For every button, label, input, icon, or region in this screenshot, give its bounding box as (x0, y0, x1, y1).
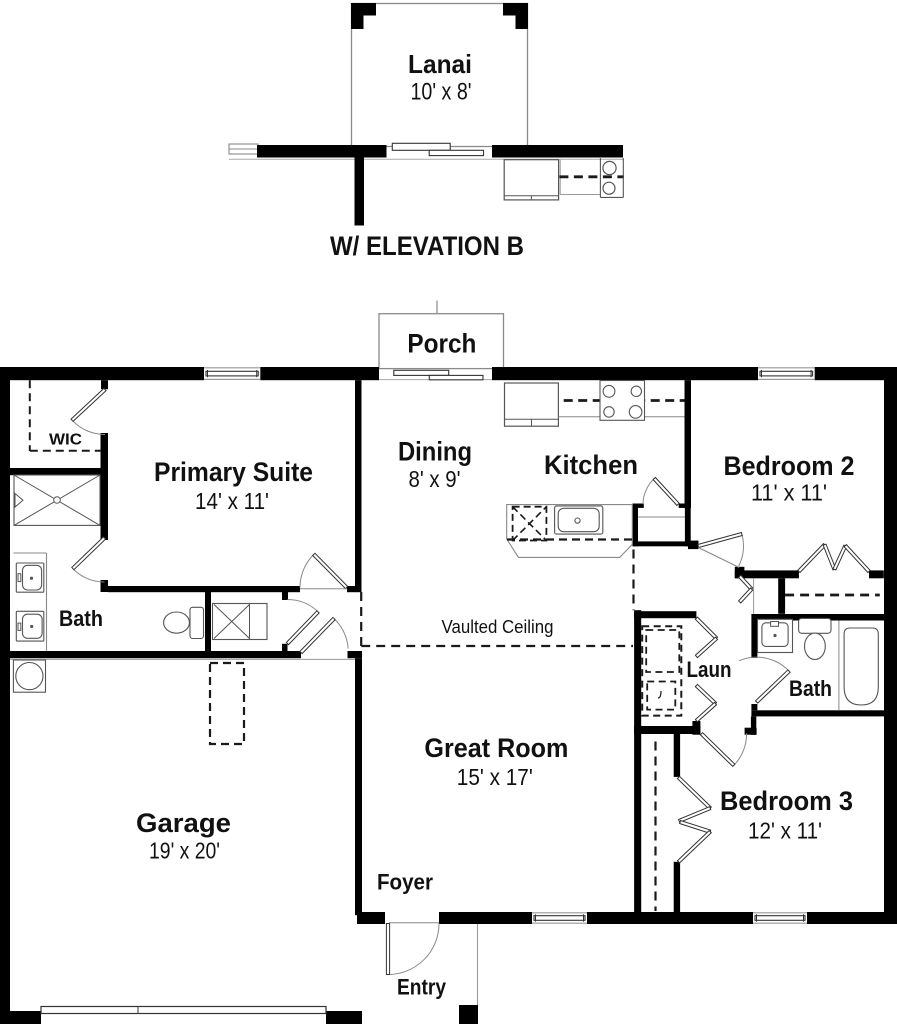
svg-text:WIC: WIC (49, 432, 82, 449)
svg-text:8' x 9': 8' x 9' (409, 466, 461, 492)
svg-text:Bath: Bath (789, 676, 832, 701)
svg-text:Foyer: Foyer (377, 870, 433, 895)
svg-text:15' x 17': 15' x 17' (457, 764, 533, 790)
svg-text:Dining: Dining (398, 437, 472, 467)
svg-text:14' x 11': 14' x 11' (195, 488, 269, 514)
svg-text:Primary Suite: Primary Suite (154, 457, 313, 487)
svg-text:10' x 8': 10' x 8' (411, 79, 472, 106)
svg-text:Bedroom 2: Bedroom 2 (724, 451, 855, 481)
svg-text:W/ ELEVATION B: W/ ELEVATION B (330, 231, 524, 261)
svg-text:19' x 20': 19' x 20' (149, 838, 220, 864)
svg-text:Great Room: Great Room (424, 733, 568, 763)
svg-text:Kitchen: Kitchen (544, 450, 638, 480)
svg-text:Bedroom 3: Bedroom 3 (720, 786, 853, 816)
svg-text:Laun: Laun (687, 657, 732, 682)
svg-text:Bath: Bath (59, 606, 103, 631)
svg-text:11' x 11': 11' x 11' (751, 480, 827, 506)
svg-text:12' x 11': 12' x 11' (748, 818, 822, 844)
svg-text:Garage: Garage (136, 808, 231, 838)
svg-text:Vaulted Ceiling: Vaulted Ceiling (442, 617, 554, 637)
svg-text:Entry: Entry (397, 975, 447, 1000)
svg-text:Lanai: Lanai (408, 49, 472, 79)
svg-text:Porch: Porch (407, 329, 476, 359)
